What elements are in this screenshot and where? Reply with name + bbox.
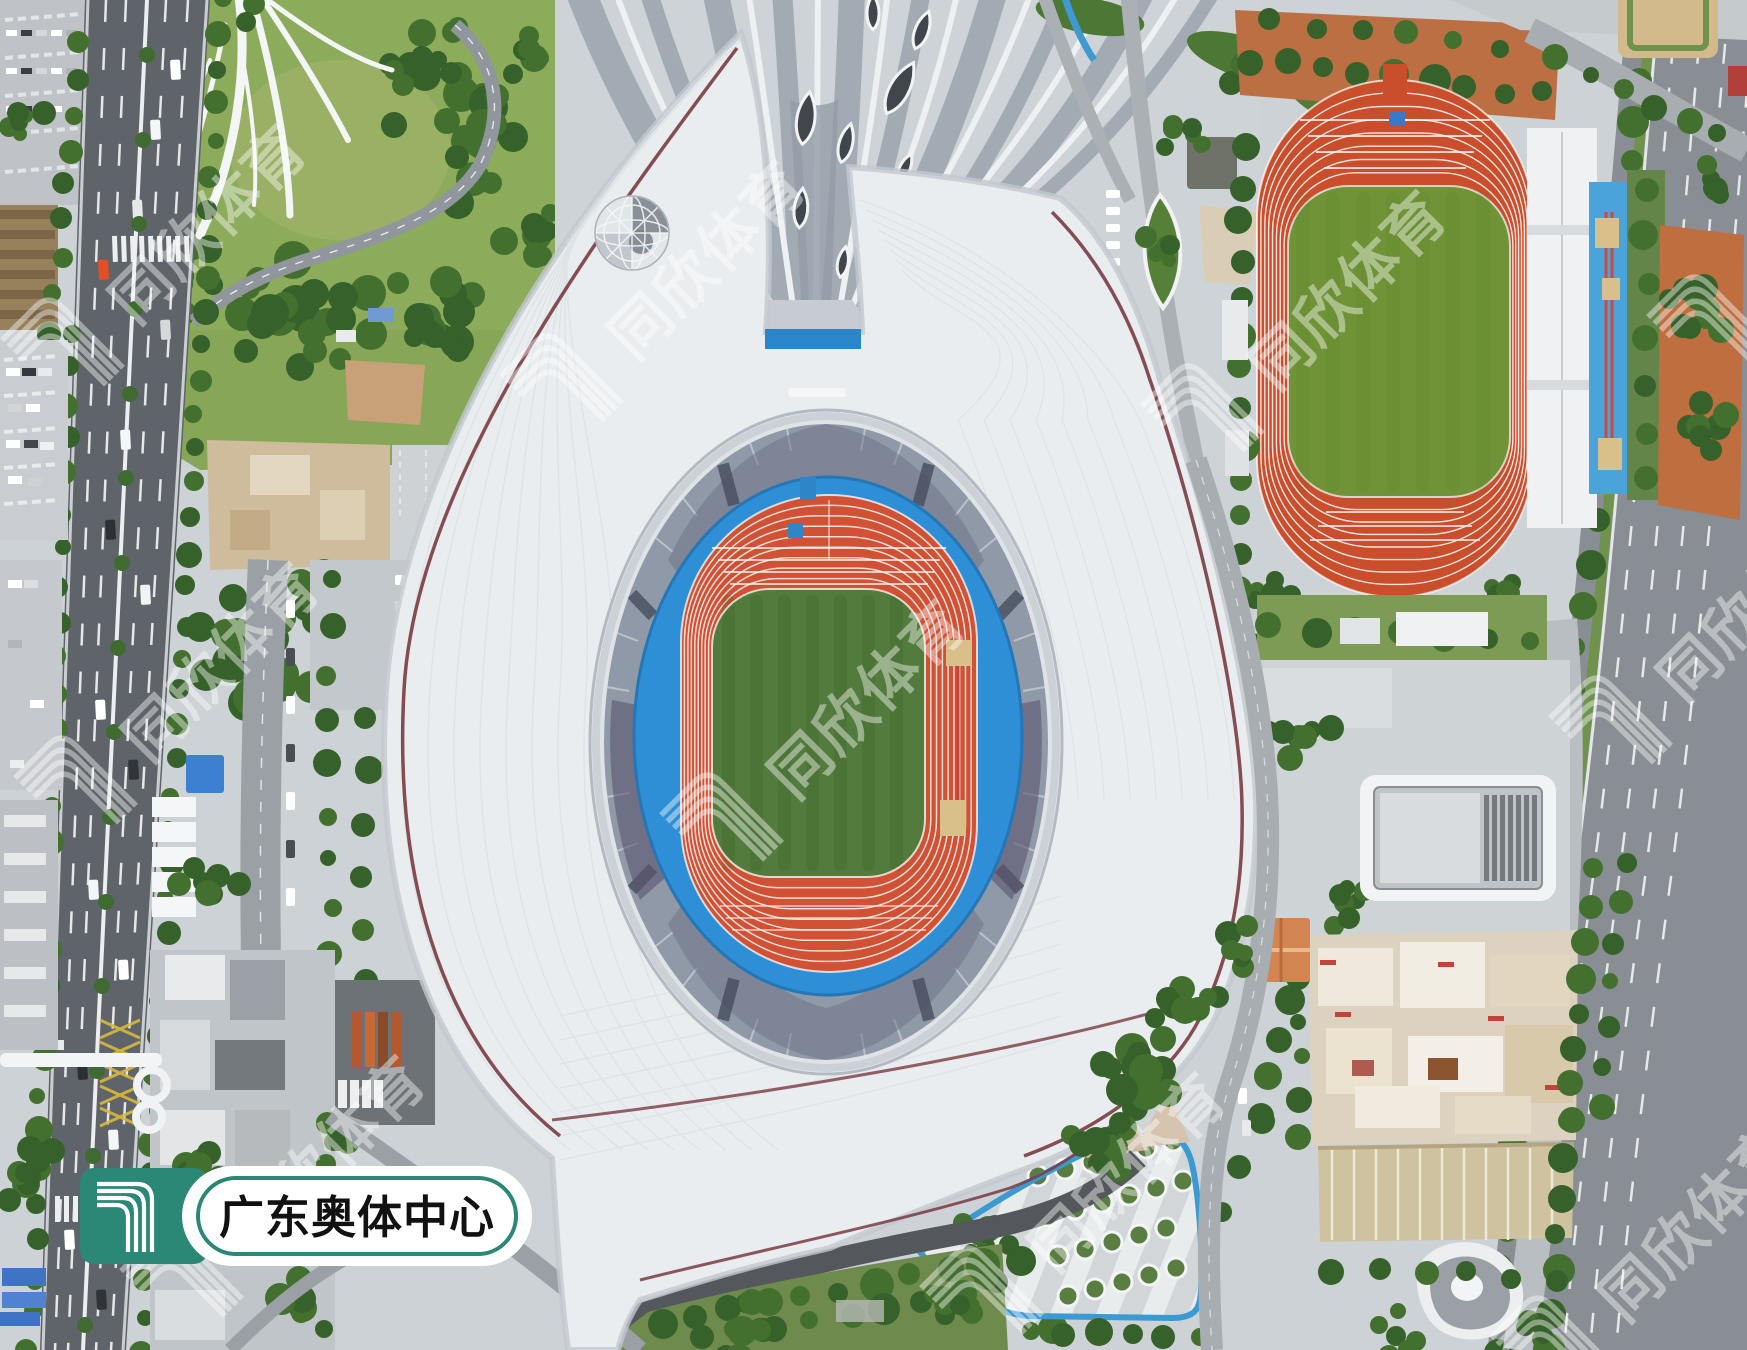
svg-text:广东奥体中心: 广东奥体中心 bbox=[219, 1192, 495, 1243]
